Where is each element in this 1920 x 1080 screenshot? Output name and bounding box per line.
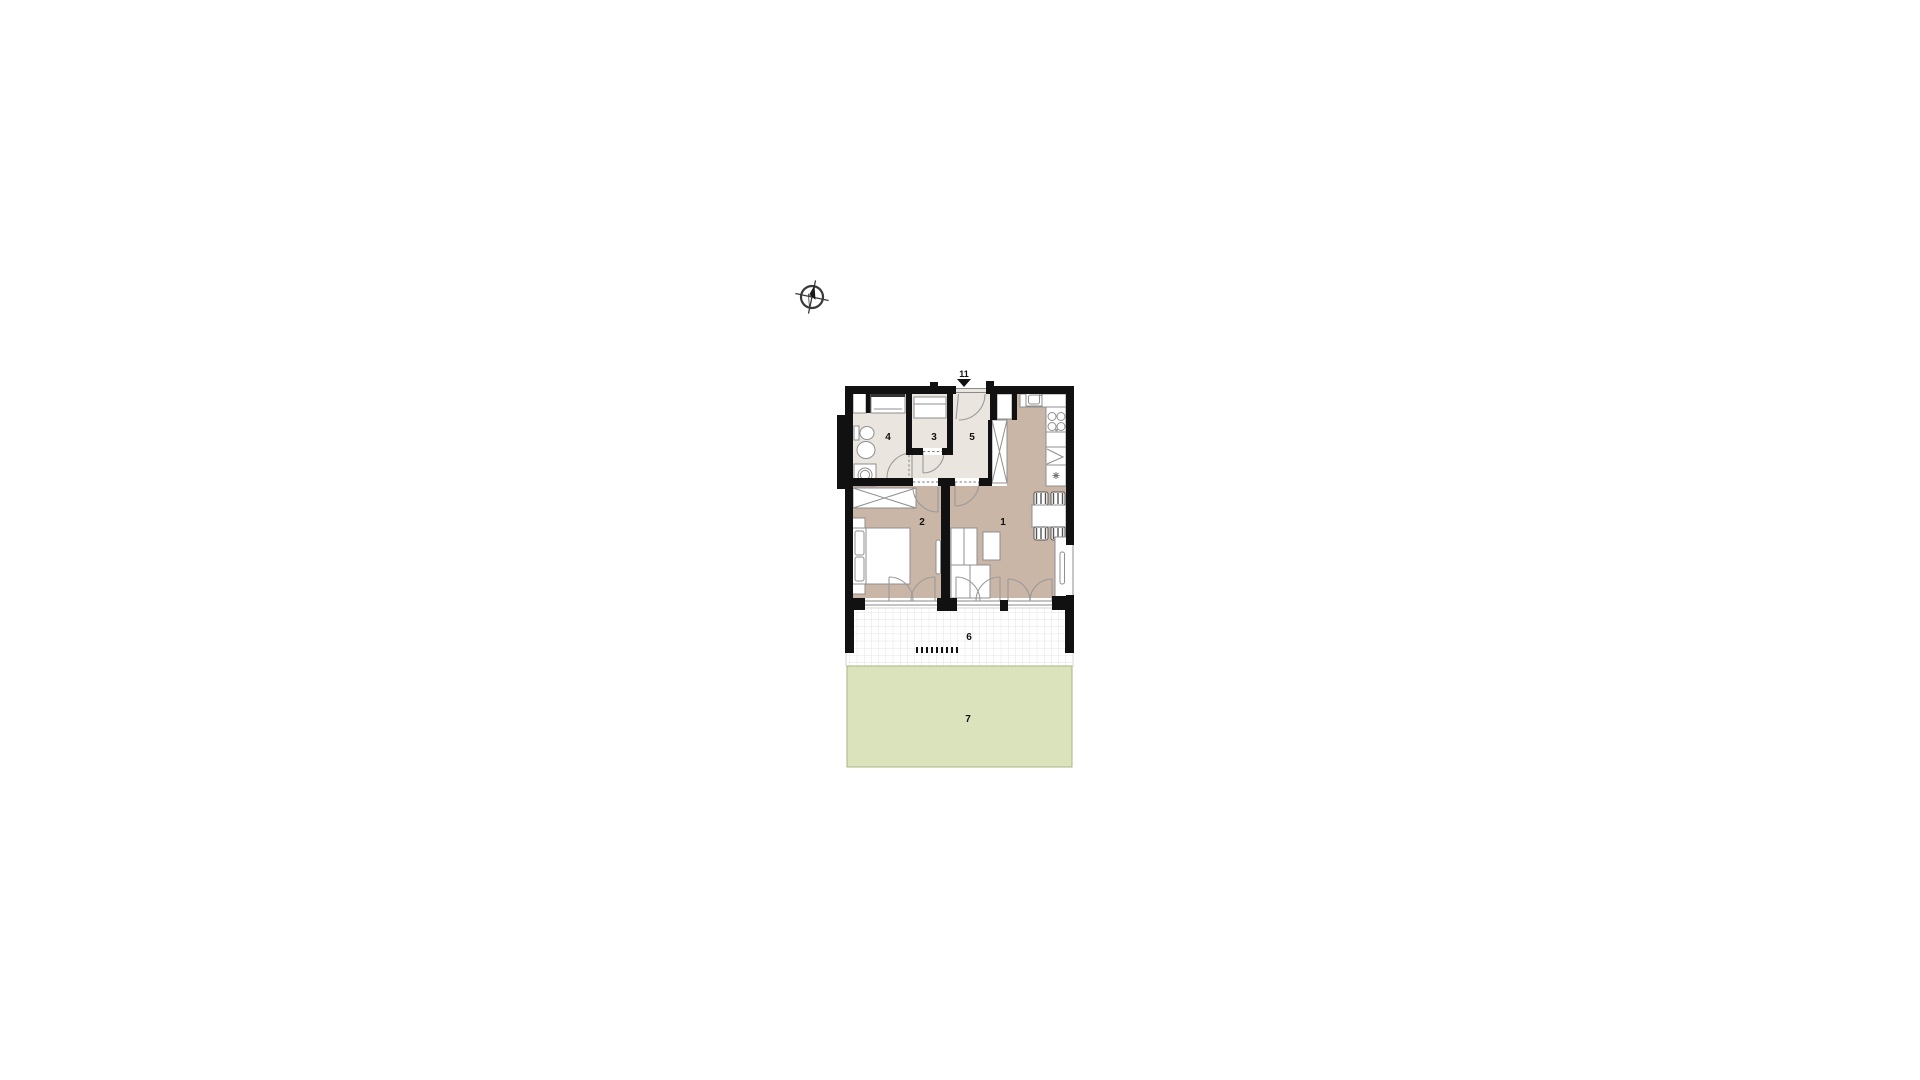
coffee-table	[983, 532, 1000, 560]
dining-table	[1032, 505, 1066, 527]
wall-mirror	[936, 540, 941, 574]
nightstand	[852, 584, 865, 594]
hall-living-wall	[988, 420, 992, 486]
compass-rose-icon	[792, 277, 832, 317]
closet-room-fixtures	[914, 397, 946, 418]
room-label-garden: 7	[965, 714, 971, 725]
left-wall-pilaster	[837, 415, 853, 489]
terrace-area	[846, 608, 1073, 666]
nightstand	[852, 518, 865, 528]
unit-number: 11	[959, 369, 969, 379]
closet-hall-wall	[947, 394, 953, 452]
entry-closet-wall-right	[1012, 394, 1017, 420]
entrance-marker: 11	[957, 369, 971, 387]
interior-wall-h1	[853, 478, 913, 486]
bottom-wall-corner-left	[845, 598, 865, 610]
room-label-living: 1	[1000, 517, 1006, 528]
room-label-hall: 5	[969, 432, 975, 443]
bottom-wall-pier-small	[1000, 600, 1008, 611]
floor-plan-page: 1 2 3 4 5 6 7 11	[0, 0, 1920, 1080]
pillow	[855, 531, 864, 555]
top-wall-right	[986, 386, 1074, 394]
dining-chair	[1034, 527, 1048, 540]
room-label-closet: 3	[931, 432, 937, 443]
entry-closet-wall-left	[990, 394, 997, 420]
garden-area	[847, 666, 1072, 767]
dining-chair	[1034, 492, 1048, 505]
floor-plan-drawing: 1 2 3 4 5 6 7 11	[0, 0, 1920, 1080]
terrace-side-wall-left	[845, 610, 854, 653]
radiator	[1060, 552, 1065, 584]
pillow	[855, 557, 864, 581]
dining-chair	[1051, 492, 1065, 505]
room-label-terrace: 6	[966, 632, 972, 643]
toilet-tank	[854, 426, 859, 440]
corridor-floor	[906, 455, 953, 478]
room-label-bathroom: 4	[885, 432, 891, 443]
bedroom-living-wall	[941, 486, 950, 600]
bedroom-window-glazing	[865, 601, 937, 605]
wardrobe-cabinet	[914, 397, 946, 418]
bottom-wall-corner-right	[1052, 596, 1074, 610]
terrace-side-wall-right	[1065, 610, 1074, 653]
terrace-tile-grid	[846, 608, 1073, 666]
top-wall-left	[845, 386, 956, 394]
bathroom-sink-icon	[857, 442, 875, 459]
dishwasher-symbol	[1053, 472, 1060, 479]
toilet-icon	[860, 427, 874, 440]
right-wall-upper	[1066, 386, 1074, 545]
entry-closet-niche	[997, 394, 1012, 419]
bath-closet-wall	[906, 394, 912, 455]
room-label-bedroom: 2	[919, 517, 925, 528]
entrance-arrow-icon	[957, 379, 971, 387]
interior-wall-h2	[938, 478, 955, 486]
